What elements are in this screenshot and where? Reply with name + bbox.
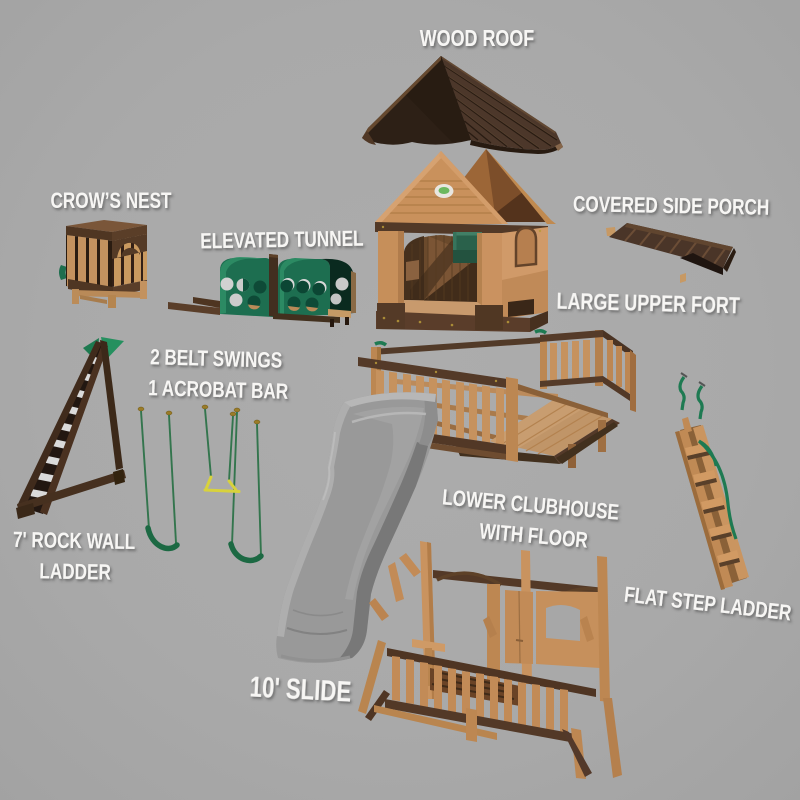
svg-text:LADDER: LADDER (39, 559, 111, 585)
svg-text:COVERED SIDE PORCH: COVERED SIDE PORCH (573, 192, 770, 220)
svg-text:ELEVATED TUNNEL: ELEVATED TUNNEL (200, 227, 364, 254)
svg-text:LARGE UPPER FORT: LARGE UPPER FORT (556, 289, 740, 319)
svg-text:10' SLIDE: 10' SLIDE (249, 672, 352, 708)
svg-text:2 BELT SWINGS: 2 BELT SWINGS (150, 345, 283, 373)
svg-text:CROW’S NEST: CROW’S NEST (50, 189, 171, 214)
svg-text:1 ACROBAT BAR: 1 ACROBAT BAR (148, 376, 289, 404)
svg-text:7' ROCK WALL: 7' ROCK WALL (13, 528, 136, 555)
svg-text:WOOD ROOF: WOOD ROOF (420, 26, 535, 52)
